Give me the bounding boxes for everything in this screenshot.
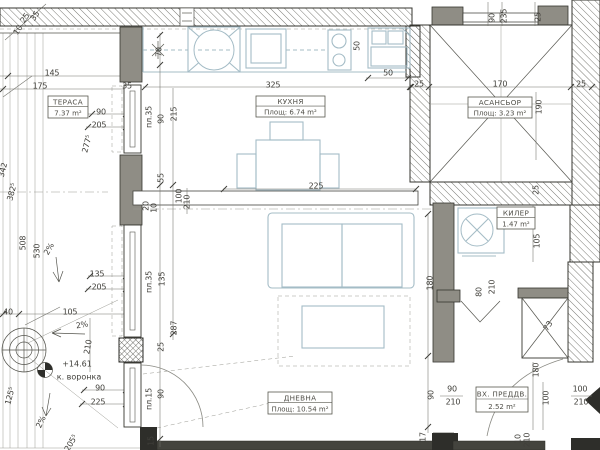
dimension-label: 100 <box>573 385 588 394</box>
dimension-label: 210 <box>488 280 497 295</box>
room-name: ДНЕВНА <box>284 393 317 402</box>
cooktop-icon <box>328 30 351 70</box>
dimension-label: 145 <box>45 69 60 78</box>
room-label-living-room: ДНЕВНАПлощ: 10.54 m² <box>268 392 332 414</box>
dimension-label: 25 <box>157 342 166 352</box>
annotation-label: +14.61 <box>62 360 92 369</box>
dimension-label: 205⁵ <box>63 433 80 450</box>
window-living <box>112 225 141 337</box>
dimension-label: 10 <box>150 203 159 213</box>
kitchen-fixtures <box>143 27 410 72</box>
dimension-label: 15 <box>147 436 156 446</box>
dimension-label: пл.35 <box>145 106 154 128</box>
dimension-label: 90 <box>157 389 166 399</box>
dimension-label: 210 <box>523 433 532 448</box>
dimension-label: 180 <box>426 276 435 291</box>
room-label-storage: КИЛЕР1.47 m² <box>497 207 535 229</box>
dimension-label: 80 <box>475 287 484 297</box>
dimension-label: 90 <box>488 13 497 23</box>
room-name: КУХНЯ <box>277 97 303 106</box>
dimension-label: 205 <box>92 283 107 292</box>
dimension-label: 135 <box>158 272 167 287</box>
dimension-label: 170 <box>493 80 508 89</box>
room-area: 1.47 m² <box>502 220 530 228</box>
dimension-label: 25 <box>576 80 586 89</box>
dimension-label: 287 <box>170 321 179 336</box>
room-name: КИЛЕР <box>503 208 530 217</box>
dimension-label: 2% <box>42 241 56 257</box>
dimension-label: 55 <box>157 173 166 183</box>
storage-door-symbol <box>461 301 500 322</box>
coffee-table-icon <box>302 306 384 348</box>
dimension-label: 50 <box>353 41 362 51</box>
dining-table-icon <box>237 122 339 190</box>
dimension-label: 205 <box>92 121 107 130</box>
fridge-icon <box>188 27 240 72</box>
dimension-label: 225 <box>91 398 106 407</box>
dimension-label: 277⁵ <box>80 134 93 153</box>
room-area: 7.37 m² <box>54 109 82 117</box>
elevator-wall-right <box>572 0 600 205</box>
dimension-label: 508 <box>19 236 28 251</box>
dimension-label: пл.35 <box>145 271 154 293</box>
room-name: ТЕРАСА <box>52 97 83 106</box>
dimension-label: 90 <box>157 114 166 124</box>
dimension-label: 40 <box>3 308 13 317</box>
dimension-label: 90 <box>95 384 105 393</box>
elevator-wall-left <box>410 25 430 182</box>
dimension-label: 90 <box>96 108 106 117</box>
room-area: Площ: 3.23 m² <box>474 109 527 117</box>
dimension-label: 235 <box>500 9 509 24</box>
windows <box>112 85 203 427</box>
room-area: 2.52 m² <box>488 403 516 411</box>
storage-wall-right <box>570 205 600 262</box>
dimension-label: пл.15 <box>145 388 154 410</box>
dimension-label: 190 <box>535 100 544 115</box>
room-name: АСАНСЬОР <box>479 98 522 107</box>
floor-plan-canvas: ТЕРАСА7.37 m²КУХНЯПлощ: 6.74 m²АСАНСЬОРП… <box>0 0 600 450</box>
room-area: Площ: 10.54 m² <box>271 405 328 413</box>
dimension-label: 180 <box>532 363 541 378</box>
dimension-label: 2% <box>34 414 48 429</box>
dimension-label: 25 <box>534 12 543 22</box>
elevator-wall-bottom <box>430 182 572 205</box>
annotation-labels: +14.61к. воронка <box>57 360 102 382</box>
dimension-label: 175 <box>33 82 48 91</box>
dimension-label: 10 <box>514 434 523 444</box>
column <box>119 338 143 362</box>
room-label-elevator: АСАНСЬОРПлощ: 3.23 m² <box>468 97 532 118</box>
dimension-label: 25 <box>414 80 424 89</box>
slope-arrow <box>42 257 85 416</box>
room-name: ВХ. ПРЕДДВ. <box>477 390 527 399</box>
dimension-label: 530 <box>33 244 42 259</box>
dimension-label: 70 <box>155 47 164 57</box>
room-label-entrance-hall: ВХ. ПРЕДДВ.2.52 m² <box>476 387 528 412</box>
dimension-label: 135 <box>90 270 105 279</box>
dimension-label: 35 <box>122 82 132 91</box>
dimension-label: 325 <box>266 81 281 90</box>
dimension-label: 105 <box>63 308 78 317</box>
dimension-label: 125⁵ <box>3 386 16 405</box>
dimension-label: 25 <box>532 185 541 195</box>
sink-icon <box>368 28 410 68</box>
room-label-terrace: ТЕРАСА7.37 m² <box>48 96 88 118</box>
dimension-label: 50 <box>383 69 393 78</box>
dimension-label: 210 <box>183 195 192 210</box>
dimension-label: 210 <box>574 398 589 407</box>
dimension-label: 2% <box>75 319 89 330</box>
annotation-label: к. воронка <box>57 373 102 382</box>
window-kitchen <box>112 85 141 153</box>
room-label-kitchen: КУХНЯПлощ: 6.74 m² <box>256 96 325 117</box>
dimension-label: 210 <box>446 398 461 407</box>
exterior-wall-top <box>0 8 412 26</box>
dimension-label: 90 <box>447 385 457 394</box>
dimension-label: 342 <box>0 162 9 179</box>
dimension-label: 100 <box>542 391 551 406</box>
dimension-label: 382⁵ <box>5 182 18 201</box>
dimension-label: 215 <box>170 107 179 122</box>
floor-plan-screenshot: ТЕРАСА7.37 m²КУХНЯПлощ: 6.74 m²АСАНСЬОРП… <box>0 0 600 450</box>
dimension-label: 17 <box>419 432 428 442</box>
dimension-label: 90 <box>427 390 436 400</box>
dimension-label: 105 <box>533 234 542 249</box>
oven-icon <box>246 29 328 68</box>
sofa-icon <box>268 213 414 288</box>
facade-wall-bottom <box>157 441 433 450</box>
dimension-label: 225 <box>309 182 324 191</box>
dimension-label: 210 <box>82 339 93 355</box>
room-area: Площ: 6.74 m² <box>264 108 317 116</box>
drain-funnel-icon <box>38 363 53 378</box>
